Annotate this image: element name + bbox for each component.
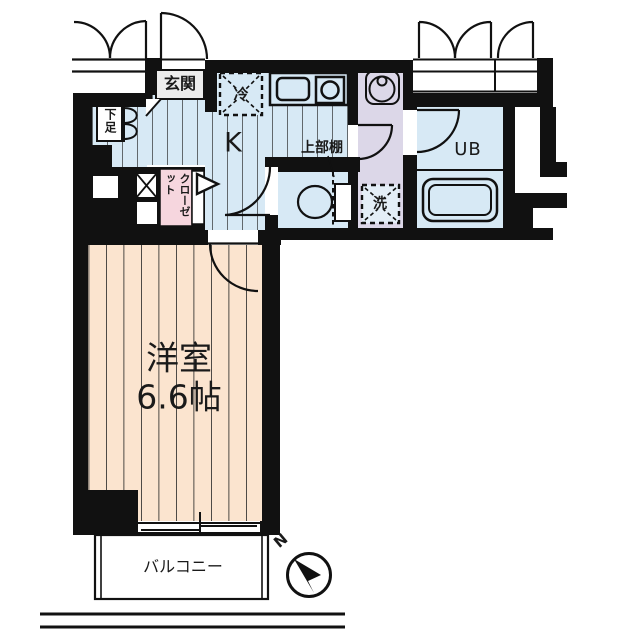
main-room-label: 洋室 xyxy=(146,342,212,375)
upper-shelf-label: 上部棚 xyxy=(301,141,343,155)
unit-bath-label: UB xyxy=(454,141,482,159)
closet-label: クローゼット xyxy=(162,173,192,223)
wall-right-foot xyxy=(540,162,567,177)
kitchen-label: K xyxy=(224,130,242,157)
washroom-door-opening xyxy=(348,125,358,157)
wall-room-top-left xyxy=(73,230,208,245)
wall-right-bar xyxy=(540,107,556,162)
toilet-door-opening xyxy=(265,167,278,215)
entrance-label: 玄関 xyxy=(164,76,196,92)
wall-right-stub xyxy=(515,208,533,228)
wall-corner-topright xyxy=(537,58,553,107)
wall-bottom-upper-block xyxy=(265,228,553,240)
shoe-cabinet-label: 下足 xyxy=(102,108,117,134)
bath-door-opening xyxy=(403,110,417,155)
wall-room-bottom-left xyxy=(73,521,138,535)
wall-niche-1 xyxy=(93,176,118,198)
wall-right-step xyxy=(515,193,567,208)
wall-niche-2 xyxy=(137,202,157,224)
wall-left-step xyxy=(92,145,112,167)
wall-genkan-divider xyxy=(205,73,217,112)
balcony-label: バルコニー xyxy=(143,559,223,575)
floor-plan-drawing xyxy=(0,0,640,640)
entrance-door xyxy=(161,13,207,72)
toilet-tank xyxy=(335,184,352,221)
wall-kitchen-washroom-upper xyxy=(348,60,358,125)
window-top-left xyxy=(72,21,147,72)
compass xyxy=(288,554,331,597)
wall-bath-right xyxy=(503,93,515,228)
refrigerator-label: 冷 xyxy=(233,88,248,103)
wall-room-left xyxy=(73,245,88,535)
main-room-size: 6.6帖 xyxy=(136,381,221,414)
washer-label: 洗 xyxy=(373,197,387,211)
wall-toilet-top xyxy=(265,157,360,172)
floor-plan: 玄関 下足 冷 K 上部棚 洗 UB クローゼット 洋室 6.6帖 バルコニー … xyxy=(0,0,640,640)
pipe-space-box xyxy=(136,173,157,198)
wall-room-right xyxy=(262,237,280,535)
wall-washroom-bath-lower xyxy=(403,155,417,228)
wall-under-right-window xyxy=(408,93,553,107)
kitchen-counter xyxy=(270,73,348,105)
wall-left-upper xyxy=(73,93,92,167)
window-top-right xyxy=(413,22,537,93)
wall-room-notch xyxy=(88,490,138,523)
